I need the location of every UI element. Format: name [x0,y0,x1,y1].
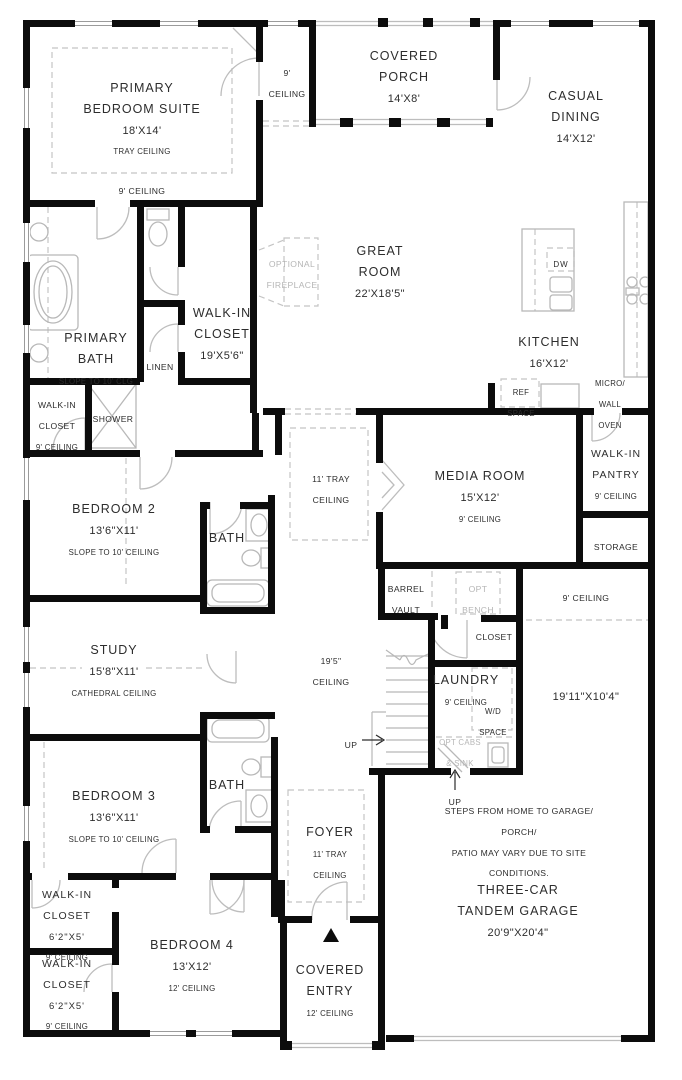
opt-cabs-sink-label: OPT CABS & SINK [439,731,481,773]
room-label-covered-porch: COVERED PORCH14'X8' [370,46,439,108]
room-label-study: STUDY15'8"X11'CATHEDRAL CEILING [71,640,156,702]
room-label-bath2: BATH [209,528,245,549]
up-label-stairs: UP [345,734,358,755]
shower-label: SHOWER [93,408,134,429]
room-label-wic-b: WALK-IN CLOSET6'2"X5'9' CEILING [42,953,92,1036]
wd-space-label: W/D SPACE [479,700,506,742]
hall-tray-ceiling-label: 11' TRAY CEILING [312,468,350,510]
ceiling-note-primary: 9' CEILING [119,180,166,201]
site-conditions-note: STEPS FROM HOME TO GARAGE/ PORCH/ PATIO … [438,800,601,883]
dishwasher-label: DW [553,253,568,274]
room-label-garage: THREE-CAR TANDEM GARAGE20'9"X20'4" [457,880,578,942]
room-label-bedroom4: BEDROOM 413'X12'12' CEILING [150,935,234,997]
entry-marker-icon [323,928,339,942]
room-label-bath3: BATH [209,775,245,796]
room-label-bedroom3: BEDROOM 313'6"X11'SLOPE TO 10' CEILING [69,786,160,848]
room-label-casual-dining: CASUAL DINING14'X12' [548,86,604,148]
room-label-primary-bedroom: PRIMARY BEDROOM SUITE18'X14'TRAY CEILING [83,78,200,161]
micro-wall-oven-label: MICRO/ WALL OVEN [595,372,625,434]
room-name: PRIMARY BEDROOM SUITE [83,81,200,116]
ceiling-note-vestibule: 9' CEILING [269,62,306,104]
staircase [372,650,428,766]
room-label-bedroom2: BEDROOM 213'6"X11'SLOPE TO 10' CEILING [69,499,160,561]
hall-closet-label: CLOSET [476,626,512,647]
room-label-foyer: FOYER11' TRAY CEILING [306,822,354,884]
room-label-kitchen: KITCHEN16'X12' [518,332,580,374]
stair-ceiling-label: 19'5" CEILING [313,650,350,692]
room-label-great-room: GREAT ROOM22'X18'5" [355,241,405,303]
barrel-vault-label: BARREL VAULT [388,578,424,620]
room-label-media-room: MEDIA ROOM15'X12'9' CEILING [435,466,526,528]
room-note: TRAY CEILING [113,147,170,156]
garage-ceiling-label: 9' CEILING [563,587,610,608]
tandem-bay-dims: 19'11"X10'4" [553,686,620,707]
room-label-wic-hall: WALK-IN CLOSET9' CEILING [36,394,78,456]
optional-fireplace-label: OPTIONAL FIREPLACE [267,253,318,295]
room-dims: 18'X14' [122,125,161,137]
room-label-pantry: WALK-IN PANTRY9' CEILING [591,443,641,505]
room-label-wic-primary: WALK-IN CLOSET19'X5'6" [193,303,251,365]
ref-space-label: REF SPACE [507,381,534,423]
storage-label: STORAGE [594,536,638,557]
room-label-covered-entry: COVERED ENTRY12' CEILING [296,960,365,1022]
linen-label: LINEN [146,356,173,377]
floorplan-canvas: PRIMARY BEDROOM SUITE18'X14'TRAY CEILING… [0,0,682,1080]
room-label-primary-bath: PRIMARY BATHSLOPE TO 10' CLG [59,328,133,390]
opt-bench-label: OPT BENCH [462,578,494,620]
